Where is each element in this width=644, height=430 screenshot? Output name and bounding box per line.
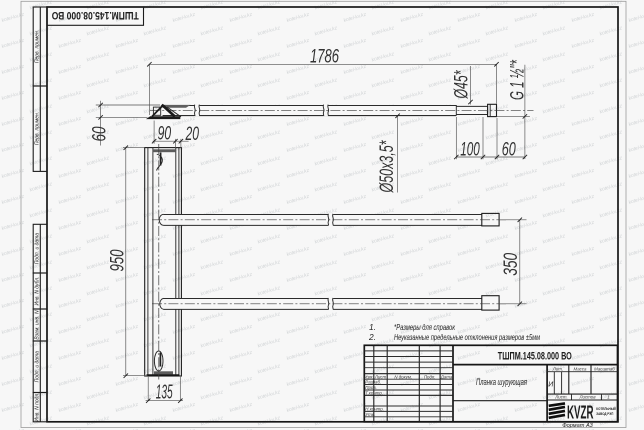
svg-text:Масштаб: Масштаб [594,366,615,371]
svg-text:Ø50х3,5*: Ø50х3,5* [377,140,398,193]
svg-text:ЗАВОД РЭП: ЗАВОД РЭП [596,411,613,416]
svg-text:Подп.: Подп. [424,374,436,379]
svg-text:Разраб.: Разраб. [365,380,381,385]
svg-text:N докум.: N докум. [394,374,412,379]
svg-text:950: 950 [108,249,129,271]
svg-text:*Размеры для справок: *Размеры для справок [394,322,456,332]
svg-text:КОТЕЛЬНЫЙ: КОТЕЛЬНЫЙ [596,406,616,411]
svg-text:Лист: Лист [374,374,387,379]
svg-text:Инв. N дубл.: Инв. N дубл. [34,277,40,306]
svg-text:G 1 ½"*: G 1 ½"* [508,60,529,100]
svg-text:350: 350 [501,252,522,275]
svg-text:Ø45*: Ø45* [452,70,473,99]
svg-text:Т.контр.: Т.контр. [365,390,383,395]
svg-text:1786: 1786 [310,47,339,68]
svg-text:20: 20 [185,124,199,145]
svg-text:Перв. примен.: Перв. примен. [34,30,40,63]
svg-text:Инв. N подл.: Инв. N подл. [34,392,40,421]
svg-text:ТШПМ.145.08.000 ВО: ТШПМ.145.08.000 ВО [498,351,572,363]
svg-text:Утв.: Утв. [365,412,375,417]
svg-text:Подп. и дата: Подп. и дата [34,351,40,383]
svg-text:ТШПМ.145.08.000 ВО: ТШПМ.145.08.000 ВО [51,9,138,21]
svg-text:Листов: Листов [579,395,597,400]
svg-text:Планка шурующая: Планка шурующая [476,377,527,387]
svg-text:100: 100 [460,139,480,160]
svg-text:Лист.: Лист. [554,395,567,400]
svg-text:KVZR: KVZR [567,402,594,422]
svg-text:Подп. и дата: Подп. и дата [34,233,40,265]
svg-text:Лит.: Лит. [552,366,563,371]
svg-text:Формат А3: Формат А3 [562,423,593,429]
svg-text:Дата: Дата [440,374,453,379]
svg-text:Изм.: Изм. [364,374,373,379]
svg-text:60: 60 [89,126,110,141]
svg-text:135: 135 [156,382,173,404]
svg-text:Н.контр.: Н.контр. [365,407,384,412]
svg-text:2.: 2. [368,332,376,342]
svg-text:60: 60 [502,139,516,160]
svg-text:Неуказанные предельные отклоне: Неуказанные предельные отклонения размер… [394,332,540,342]
svg-text:Пров.: Пров. [365,385,377,390]
svg-text:1.: 1. [369,322,376,332]
svg-text:Взам. инв. N: Взам. инв. N [34,310,40,340]
svg-text:Перв. примен.: Перв. примен. [34,112,40,145]
svg-text:90: 90 [158,124,172,145]
svg-text:Масса: Масса [574,366,588,371]
